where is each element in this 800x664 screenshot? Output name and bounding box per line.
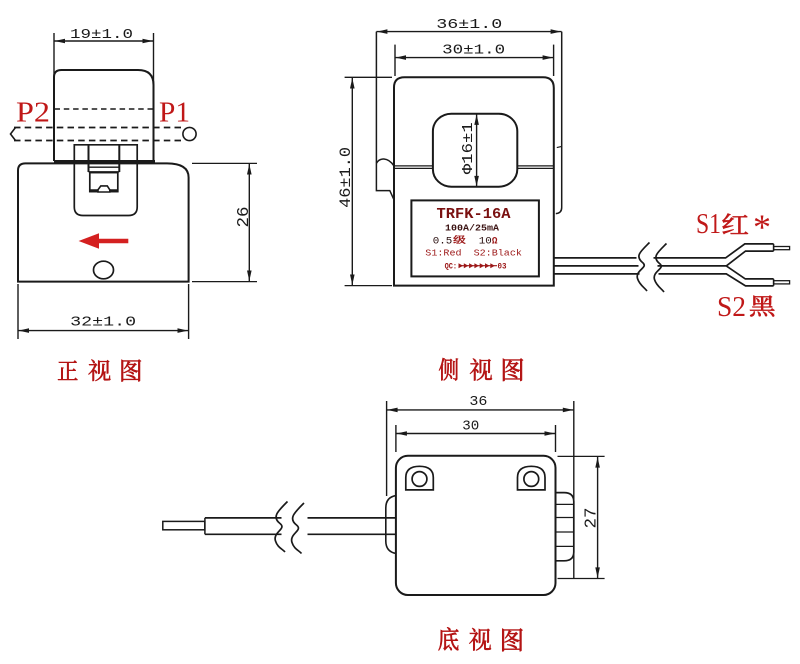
svg-text:27: 27 bbox=[582, 508, 601, 529]
svg-text:TRFK-16A: TRFK-16A bbox=[437, 207, 511, 223]
svg-text:P1: P1 bbox=[159, 98, 190, 129]
svg-text:19±1.0: 19±1.0 bbox=[70, 28, 133, 43]
svg-text:QC:: QC: bbox=[445, 262, 458, 272]
svg-text:03: 03 bbox=[498, 262, 507, 272]
svg-text:46±1.0: 46±1.0 bbox=[337, 147, 355, 208]
svg-text:S1: S1 bbox=[696, 209, 721, 240]
svg-text:30±1.0: 30±1.0 bbox=[442, 43, 505, 58]
svg-text:30: 30 bbox=[462, 420, 479, 435]
svg-text:S1:Red S2:Black: S1:Red S2:Black bbox=[425, 248, 522, 259]
svg-text:100A/25mA: 100A/25mA bbox=[445, 222, 499, 233]
svg-text:Ω: Ω bbox=[492, 235, 498, 247]
svg-text:P2: P2 bbox=[16, 98, 50, 129]
svg-text:32±1.0: 32±1.0 bbox=[70, 315, 136, 330]
svg-text:36±1.0: 36±1.0 bbox=[436, 18, 502, 33]
svg-text:S2: S2 bbox=[717, 292, 746, 323]
svg-text:10: 10 bbox=[479, 235, 492, 247]
svg-text:0.5: 0.5 bbox=[433, 235, 453, 247]
svg-text:36: 36 bbox=[469, 395, 487, 410]
svg-text:*: * bbox=[753, 207, 771, 247]
svg-text:Φ16±1: Φ16±1 bbox=[461, 122, 477, 174]
svg-text:26: 26 bbox=[235, 207, 254, 228]
